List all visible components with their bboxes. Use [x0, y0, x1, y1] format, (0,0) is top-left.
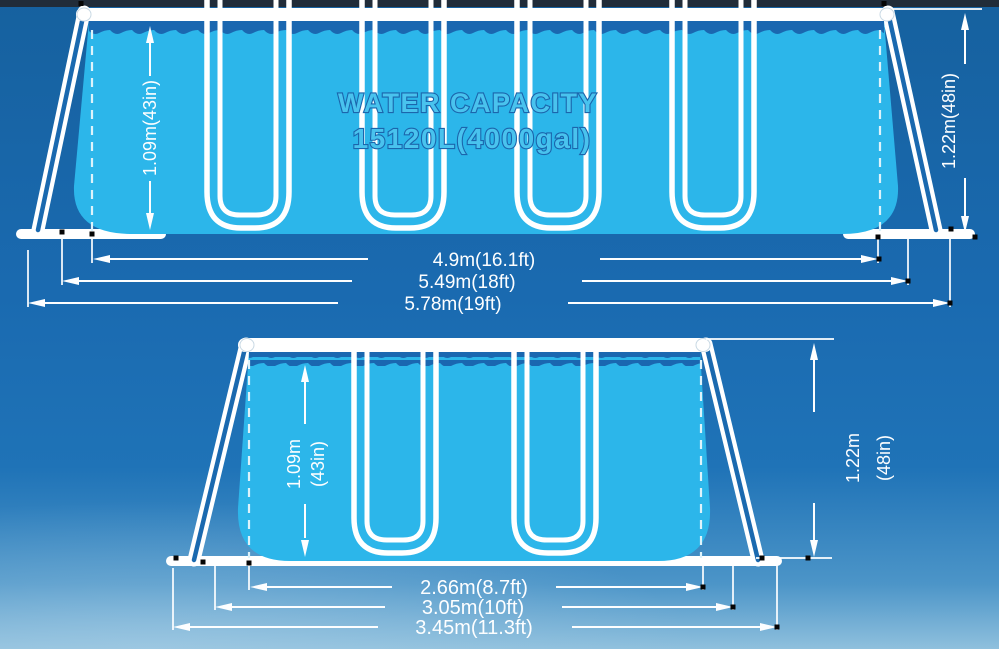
long-height-label: 1.22m(48in) — [939, 73, 959, 169]
rail-cap-right — [696, 339, 710, 352]
rail-cap-left — [240, 339, 254, 352]
short-depth-label-m: 1.09m — [284, 439, 304, 489]
short-height-label-m: 1.22m — [843, 433, 863, 483]
diagram-canvas: WATER CAPACITY 15120L(4000gal) 1.09m(43i… — [0, 0, 999, 649]
top-rail-shadow-bar — [0, 0, 999, 7]
rail-cap-right — [880, 8, 894, 21]
short-top-width-label: 3.05m(10ft) — [422, 597, 524, 619]
waterline-waves — [249, 357, 700, 366]
long-top-width-label: 5.49m(18ft) — [418, 272, 515, 293]
long-base-width-label: 5.78m(19ft) — [404, 294, 501, 315]
pool-dimension-diagram: WATER CAPACITY 15120L(4000gal) 1.09m(43i… — [0, 0, 999, 649]
short-depth-label-in: (43in) — [308, 441, 328, 487]
long-depth-label: 1.09m(43in) — [140, 80, 160, 176]
short-inner-width-label: 2.66m(8.7ft) — [420, 577, 528, 599]
short-height-label-in: (48in) — [874, 435, 894, 481]
water-capacity-title: WATER CAPACITY — [338, 88, 598, 118]
water-capacity-value: 15120L(4000gal) — [353, 123, 592, 154]
rail-cap-left — [77, 8, 91, 21]
top-rail — [76, 8, 894, 21]
top-rail — [238, 338, 712, 352]
long-inner-width-label: 4.9m(16.1ft) — [433, 250, 535, 271]
short-base-width-label: 3.45m(11.3ft) — [415, 617, 532, 639]
